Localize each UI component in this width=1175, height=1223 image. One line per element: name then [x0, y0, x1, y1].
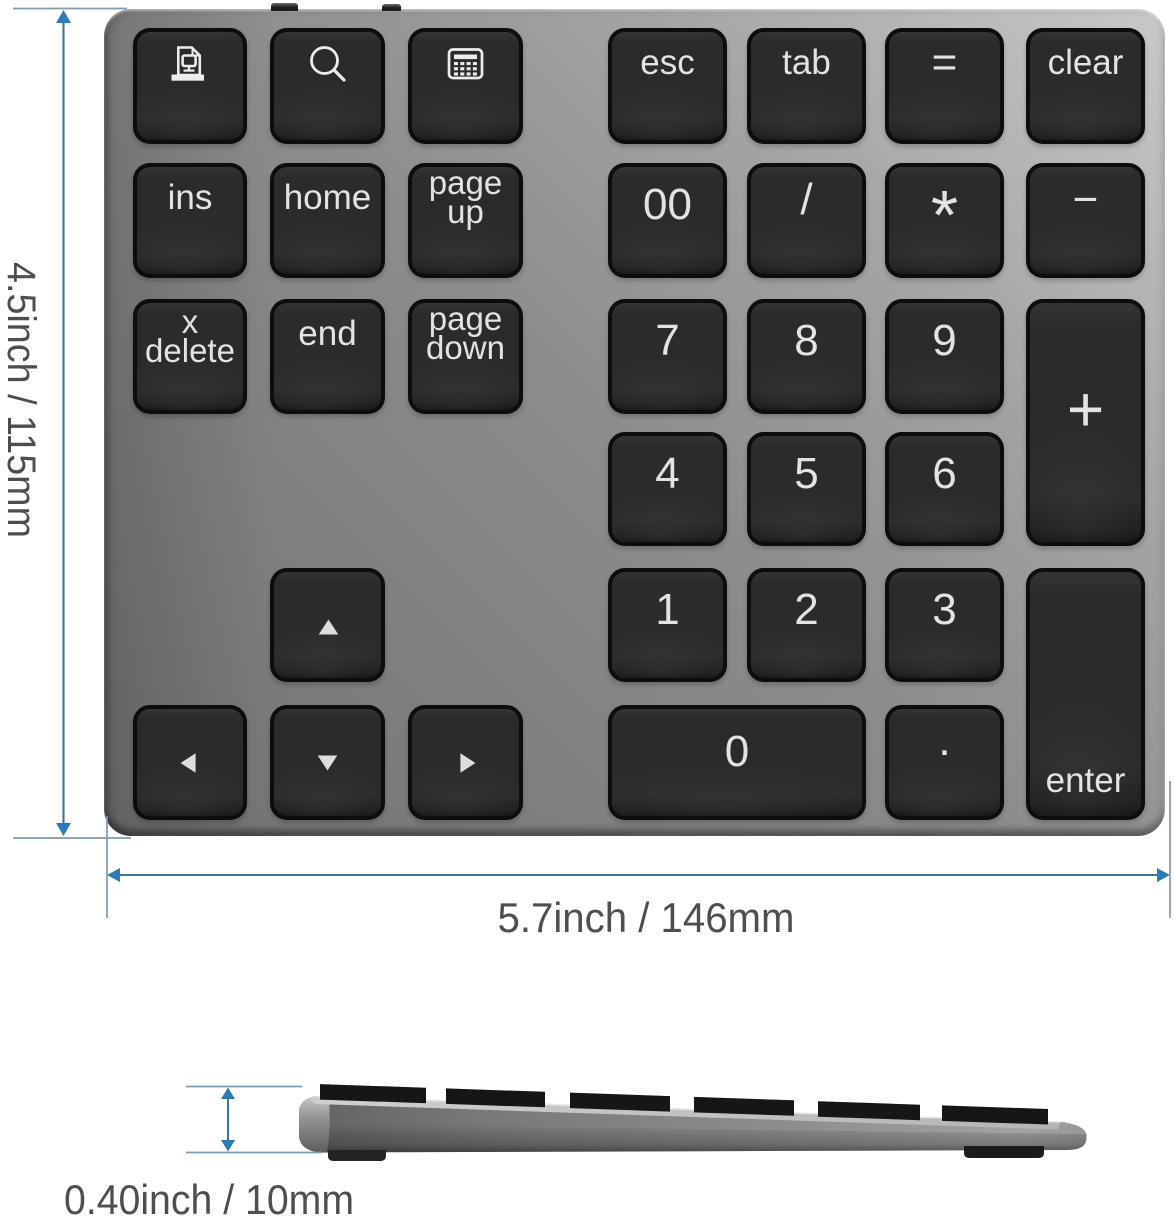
svg-text:5.7inch / 146mm: 5.7inch / 146mm — [498, 894, 795, 941]
svg-text:4.5inch / 115mm: 4.5inch / 115mm — [0, 262, 43, 538]
svg-text:0.40inch / 10mm: 0.40inch / 10mm — [64, 1176, 354, 1223]
